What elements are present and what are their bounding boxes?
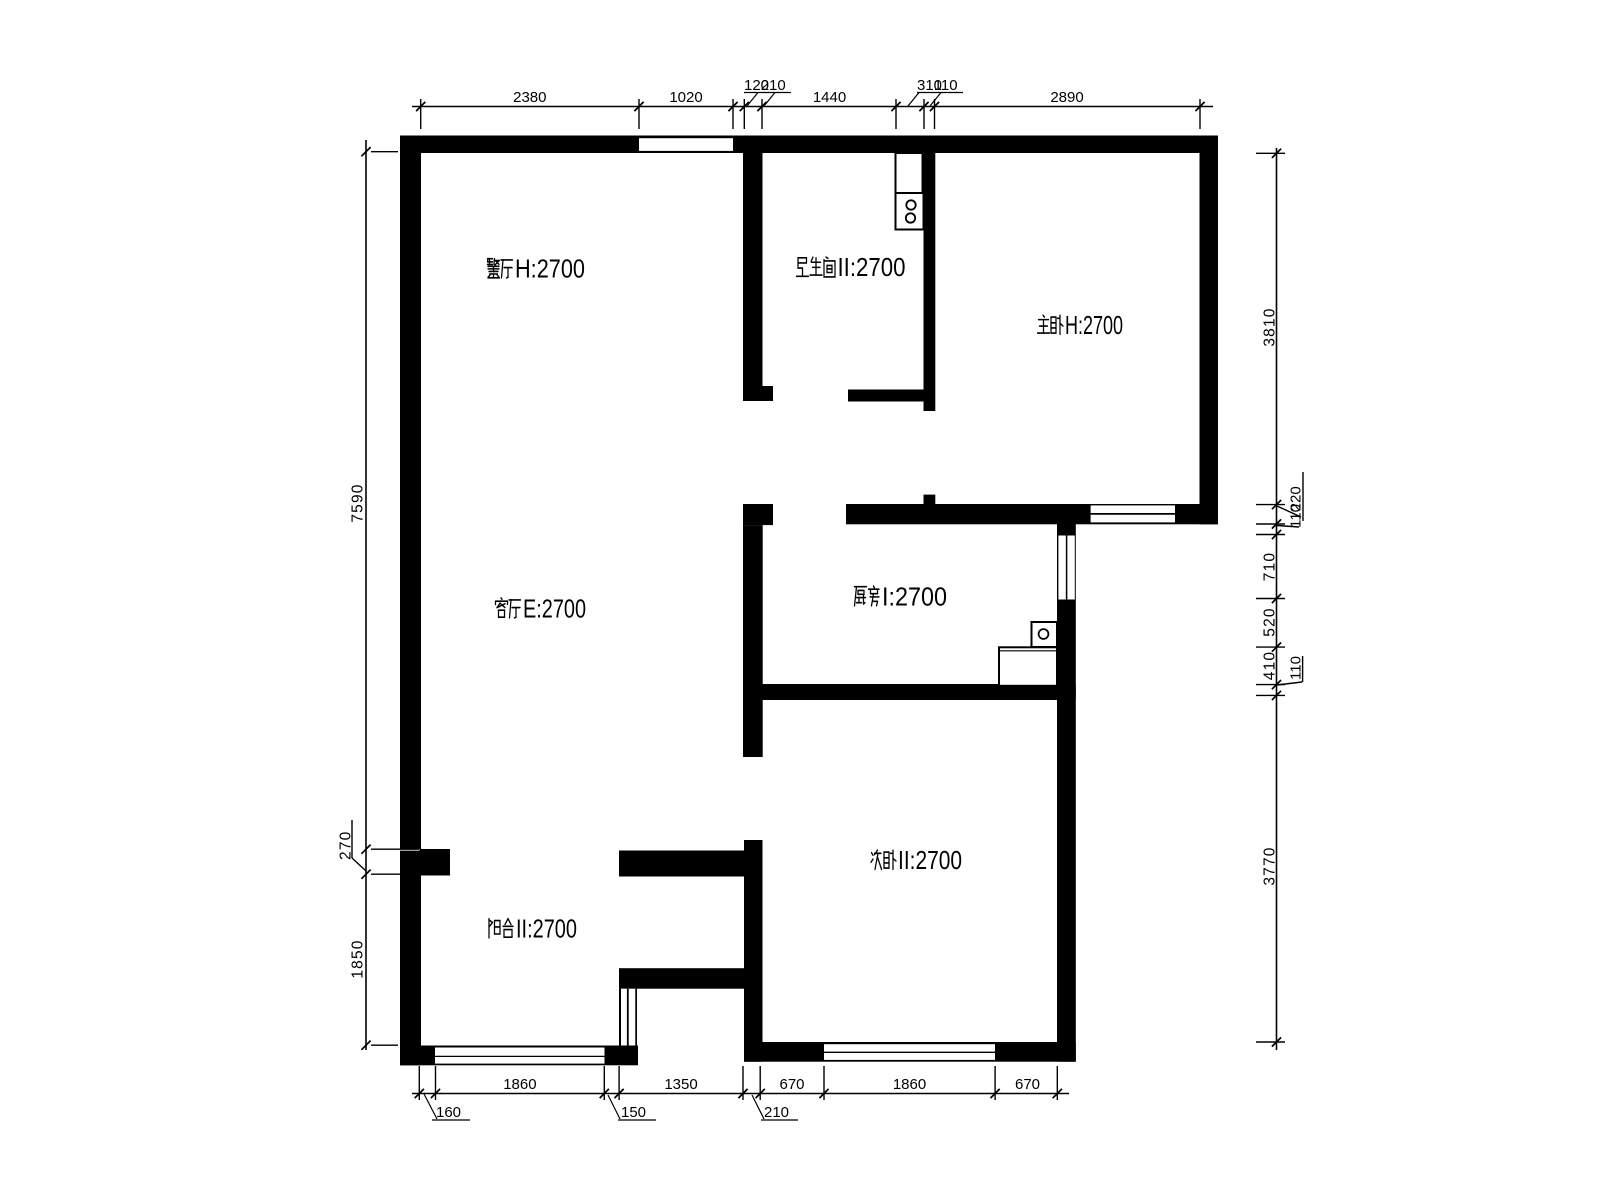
svg-text:I:2700: I:2700 xyxy=(882,582,947,612)
svg-text:150: 150 xyxy=(621,1104,646,1121)
svg-text:210: 210 xyxy=(764,1104,789,1121)
svg-text:220: 220 xyxy=(1288,486,1305,511)
svg-text:270: 270 xyxy=(338,831,355,860)
svg-text:410: 410 xyxy=(1262,651,1279,680)
svg-text:110: 110 xyxy=(1288,656,1305,680)
svg-text:2890: 2890 xyxy=(1050,89,1083,106)
svg-text:II:2700: II:2700 xyxy=(898,845,962,875)
svg-text:H:2700: H:2700 xyxy=(1065,310,1123,340)
svg-text:E:2700: E:2700 xyxy=(523,594,586,624)
svg-text:3770: 3770 xyxy=(1262,846,1279,885)
svg-text:II:2700: II:2700 xyxy=(838,252,906,282)
svg-text:670: 670 xyxy=(779,1076,804,1093)
svg-text:1860: 1860 xyxy=(503,1076,536,1093)
svg-text:670: 670 xyxy=(1015,1076,1040,1093)
svg-text:710: 710 xyxy=(1262,552,1279,581)
svg-text:3810: 3810 xyxy=(1262,307,1279,346)
svg-text:H:2700: H:2700 xyxy=(515,254,585,284)
svg-text:110: 110 xyxy=(934,77,958,94)
svg-text:1860: 1860 xyxy=(893,1076,926,1093)
svg-text:210: 210 xyxy=(761,77,786,94)
svg-text:160: 160 xyxy=(436,1104,461,1121)
svg-text:II:2700: II:2700 xyxy=(516,914,577,944)
svg-text:7590: 7590 xyxy=(350,483,367,522)
svg-text:1350: 1350 xyxy=(664,1076,697,1093)
svg-text:1020: 1020 xyxy=(669,89,702,106)
svg-text:1440: 1440 xyxy=(813,89,846,106)
svg-text:1850: 1850 xyxy=(350,939,367,978)
svg-text:2380: 2380 xyxy=(513,89,546,106)
svg-text:520: 520 xyxy=(1262,607,1279,636)
